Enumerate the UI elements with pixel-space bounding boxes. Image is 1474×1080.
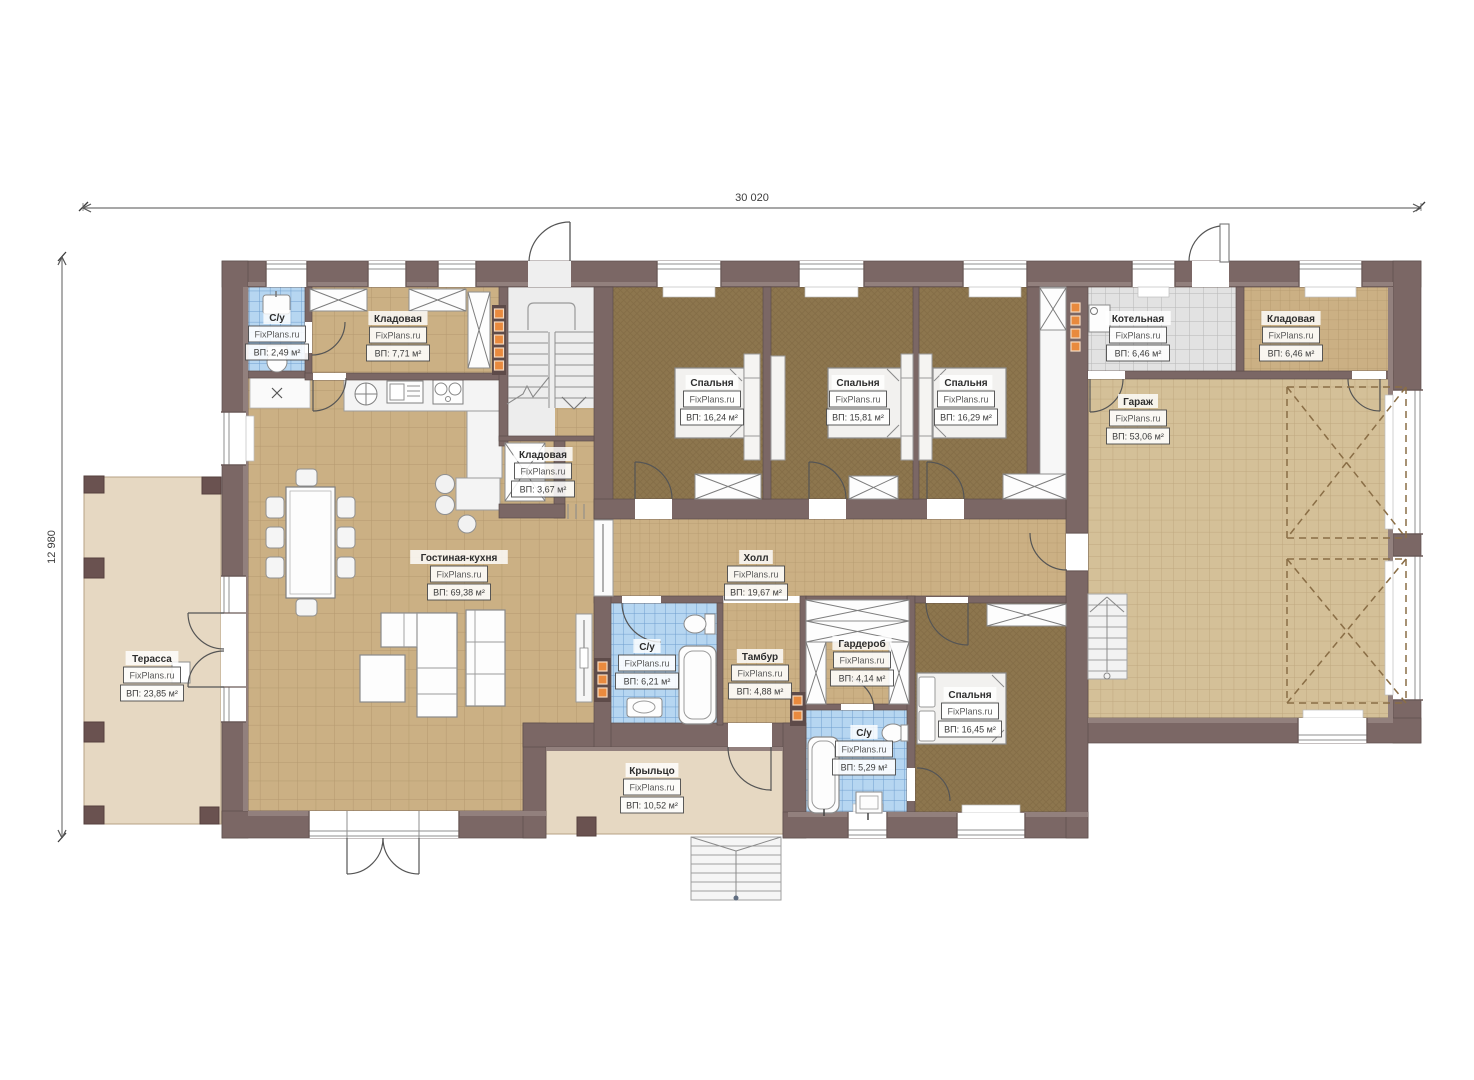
svg-text:С/у: С/у xyxy=(269,313,285,324)
svg-text:ВП: 10,52 м²: ВП: 10,52 м² xyxy=(626,801,678,811)
svg-text:ВП: 2,49 м²: ВП: 2,49 м² xyxy=(254,348,301,358)
svg-text:ВП: 16,45 м²: ВП: 16,45 м² xyxy=(944,725,996,735)
svg-text:ВП: 53,06 м²: ВП: 53,06 м² xyxy=(1112,432,1164,442)
svg-text:Спальня: Спальня xyxy=(690,378,733,389)
svg-text:12 980: 12 980 xyxy=(46,530,58,564)
svg-text:FixPlans.ru: FixPlans.ru xyxy=(254,330,299,340)
svg-text:Крыльцо: Крыльцо xyxy=(629,766,675,777)
svg-text:Котельная: Котельная xyxy=(1112,314,1165,325)
svg-text:Спальня: Спальня xyxy=(948,690,991,701)
svg-text:ВП: 6,46 м²: ВП: 6,46 м² xyxy=(1115,349,1162,359)
svg-text:ВП: 15,81 м²: ВП: 15,81 м² xyxy=(832,413,884,423)
svg-text:ВП: 4,14 м²: ВП: 4,14 м² xyxy=(839,674,886,684)
svg-text:ВП: 19,67 м²: ВП: 19,67 м² xyxy=(730,588,782,598)
svg-text:FixPlans.ru: FixPlans.ru xyxy=(375,331,420,341)
svg-text:ВП: 4,88 м²: ВП: 4,88 м² xyxy=(737,687,784,697)
svg-text:FixPlans.ru: FixPlans.ru xyxy=(129,671,174,681)
svg-text:30 020: 30 020 xyxy=(735,192,769,204)
svg-text:FixPlans.ru: FixPlans.ru xyxy=(733,570,778,580)
svg-text:Кладовая: Кладовая xyxy=(519,450,567,461)
svg-text:ВП: 5,29 м²: ВП: 5,29 м² xyxy=(841,763,888,773)
svg-text:Спальня: Спальня xyxy=(836,378,879,389)
svg-text:FixPlans.ru: FixPlans.ru xyxy=(947,707,992,717)
svg-text:FixPlans.ru: FixPlans.ru xyxy=(624,659,669,669)
svg-text:С/у: С/у xyxy=(856,728,872,739)
svg-text:ВП: 6,46 м²: ВП: 6,46 м² xyxy=(1268,349,1315,359)
svg-text:ВП: 3,67 м²: ВП: 3,67 м² xyxy=(520,485,567,495)
svg-text:Холл: Холл xyxy=(743,553,768,564)
svg-text:FixPlans.ru: FixPlans.ru xyxy=(835,395,880,405)
svg-text:FixPlans.ru: FixPlans.ru xyxy=(629,783,674,793)
svg-text:FixPlans.ru: FixPlans.ru xyxy=(737,669,782,679)
svg-text:Гараж: Гараж xyxy=(1123,397,1154,408)
svg-text:FixPlans.ru: FixPlans.ru xyxy=(689,395,734,405)
svg-text:FixPlans.ru: FixPlans.ru xyxy=(943,395,988,405)
svg-text:FixPlans.ru: FixPlans.ru xyxy=(436,570,481,580)
svg-text:Тамбур: Тамбур xyxy=(742,651,778,663)
svg-text:ВП: 16,24 м²: ВП: 16,24 м² xyxy=(686,413,738,423)
svg-text:Гостиная-кухня: Гостиная-кухня xyxy=(421,553,498,564)
svg-text:ВП: 6,21 м²: ВП: 6,21 м² xyxy=(624,677,671,687)
svg-text:Кладовая: Кладовая xyxy=(374,314,422,325)
svg-text:Гардероб: Гардероб xyxy=(838,638,885,650)
svg-text:FixPlans.ru: FixPlans.ru xyxy=(839,656,884,666)
svg-text:FixPlans.ru: FixPlans.ru xyxy=(1115,331,1160,341)
svg-text:FixPlans.ru: FixPlans.ru xyxy=(841,745,886,755)
svg-text:FixPlans.ru: FixPlans.ru xyxy=(1115,414,1160,424)
svg-text:ВП: 7,71 м²: ВП: 7,71 м² xyxy=(375,349,422,359)
svg-text:FixPlans.ru: FixPlans.ru xyxy=(520,467,565,477)
svg-text:ВП: 69,38 м²: ВП: 69,38 м² xyxy=(433,588,485,598)
svg-text:FixPlans.ru: FixPlans.ru xyxy=(1268,331,1313,341)
svg-text:Кладовая: Кладовая xyxy=(1267,314,1315,325)
svg-text:С/у: С/у xyxy=(639,642,655,653)
svg-text:ВП: 16,29 м²: ВП: 16,29 м² xyxy=(940,413,992,423)
svg-text:ВП: 23,85 м²: ВП: 23,85 м² xyxy=(126,689,178,699)
svg-text:Спальня: Спальня xyxy=(944,378,987,389)
svg-text:Терасса: Терасса xyxy=(132,654,172,665)
